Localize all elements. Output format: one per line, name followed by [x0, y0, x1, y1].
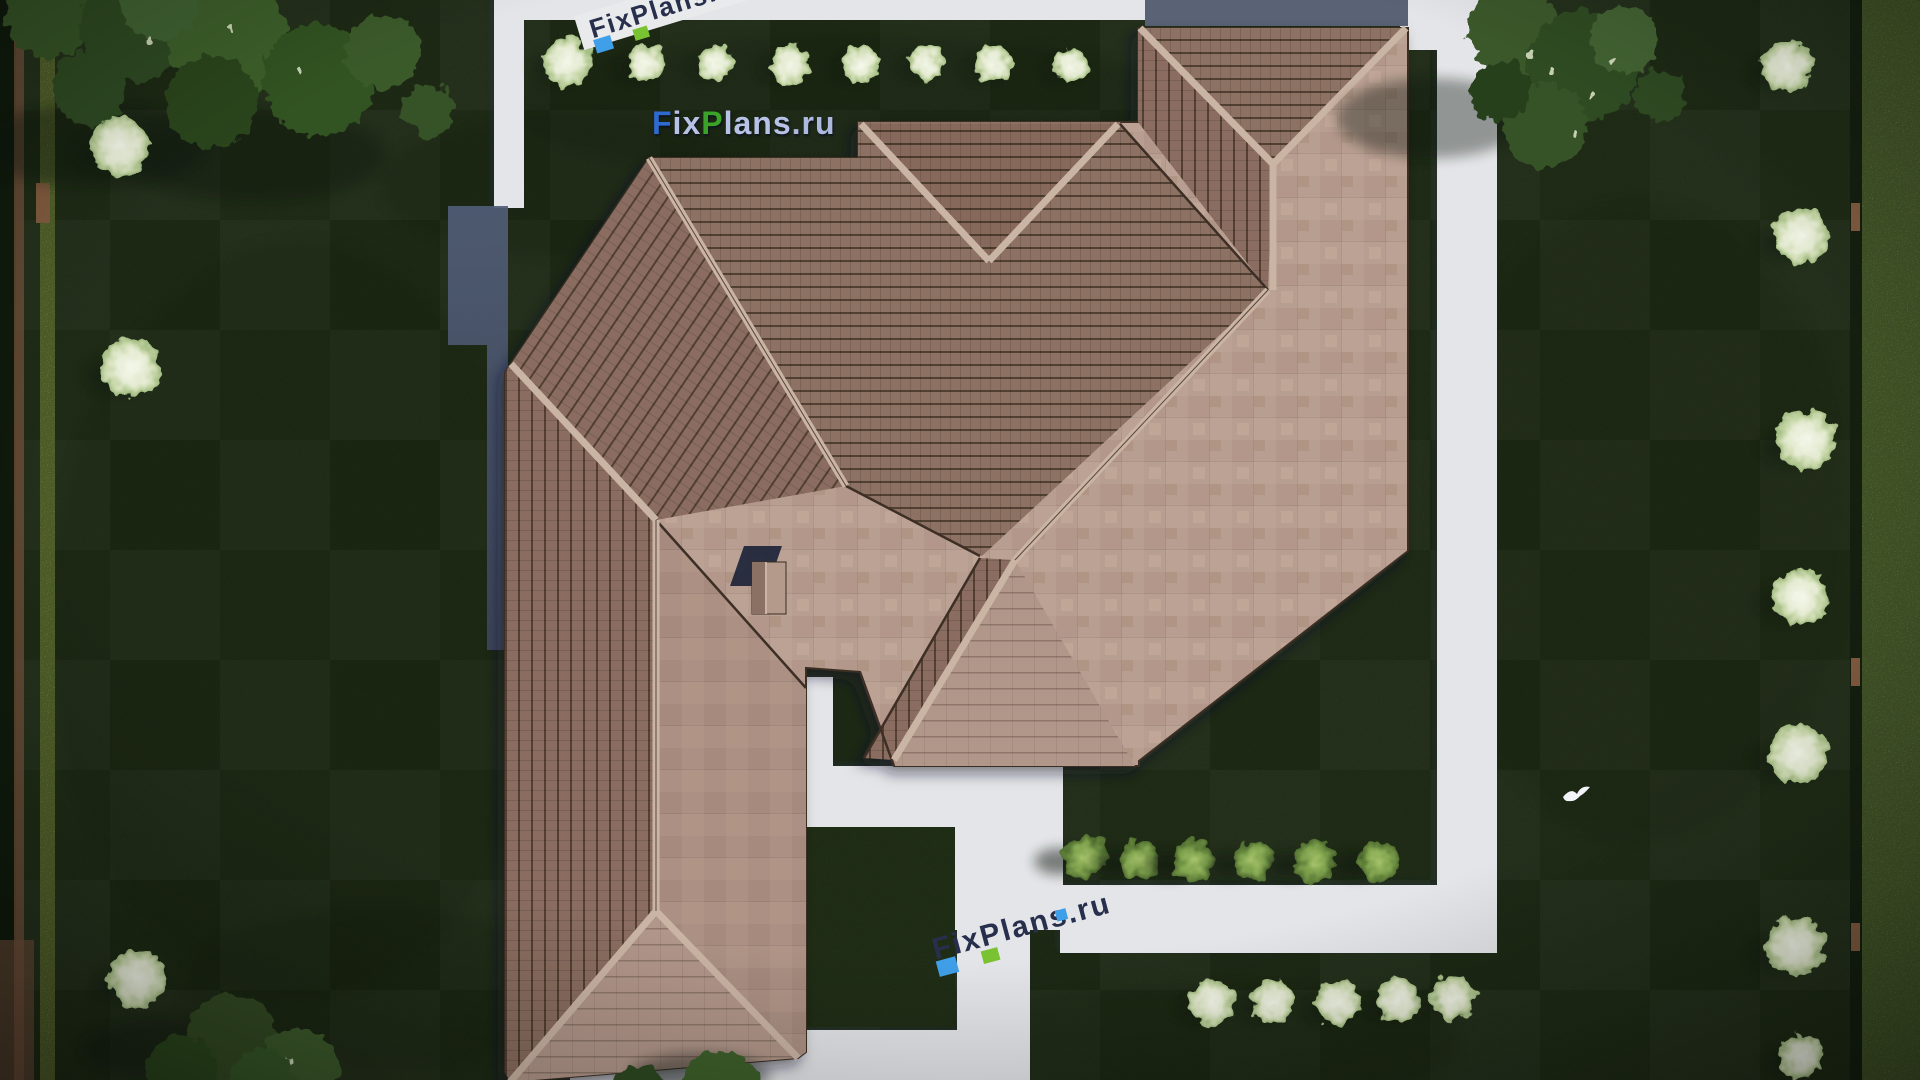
aerial-house-render: FixPlans.ru FixPlans.ru FixPlans.ru [0, 0, 1920, 1080]
vignette-overlay [0, 0, 1920, 1080]
site-plan-render: FixPlans.ru FixPlans.ru FixPlans.ru [0, 0, 1920, 1080]
